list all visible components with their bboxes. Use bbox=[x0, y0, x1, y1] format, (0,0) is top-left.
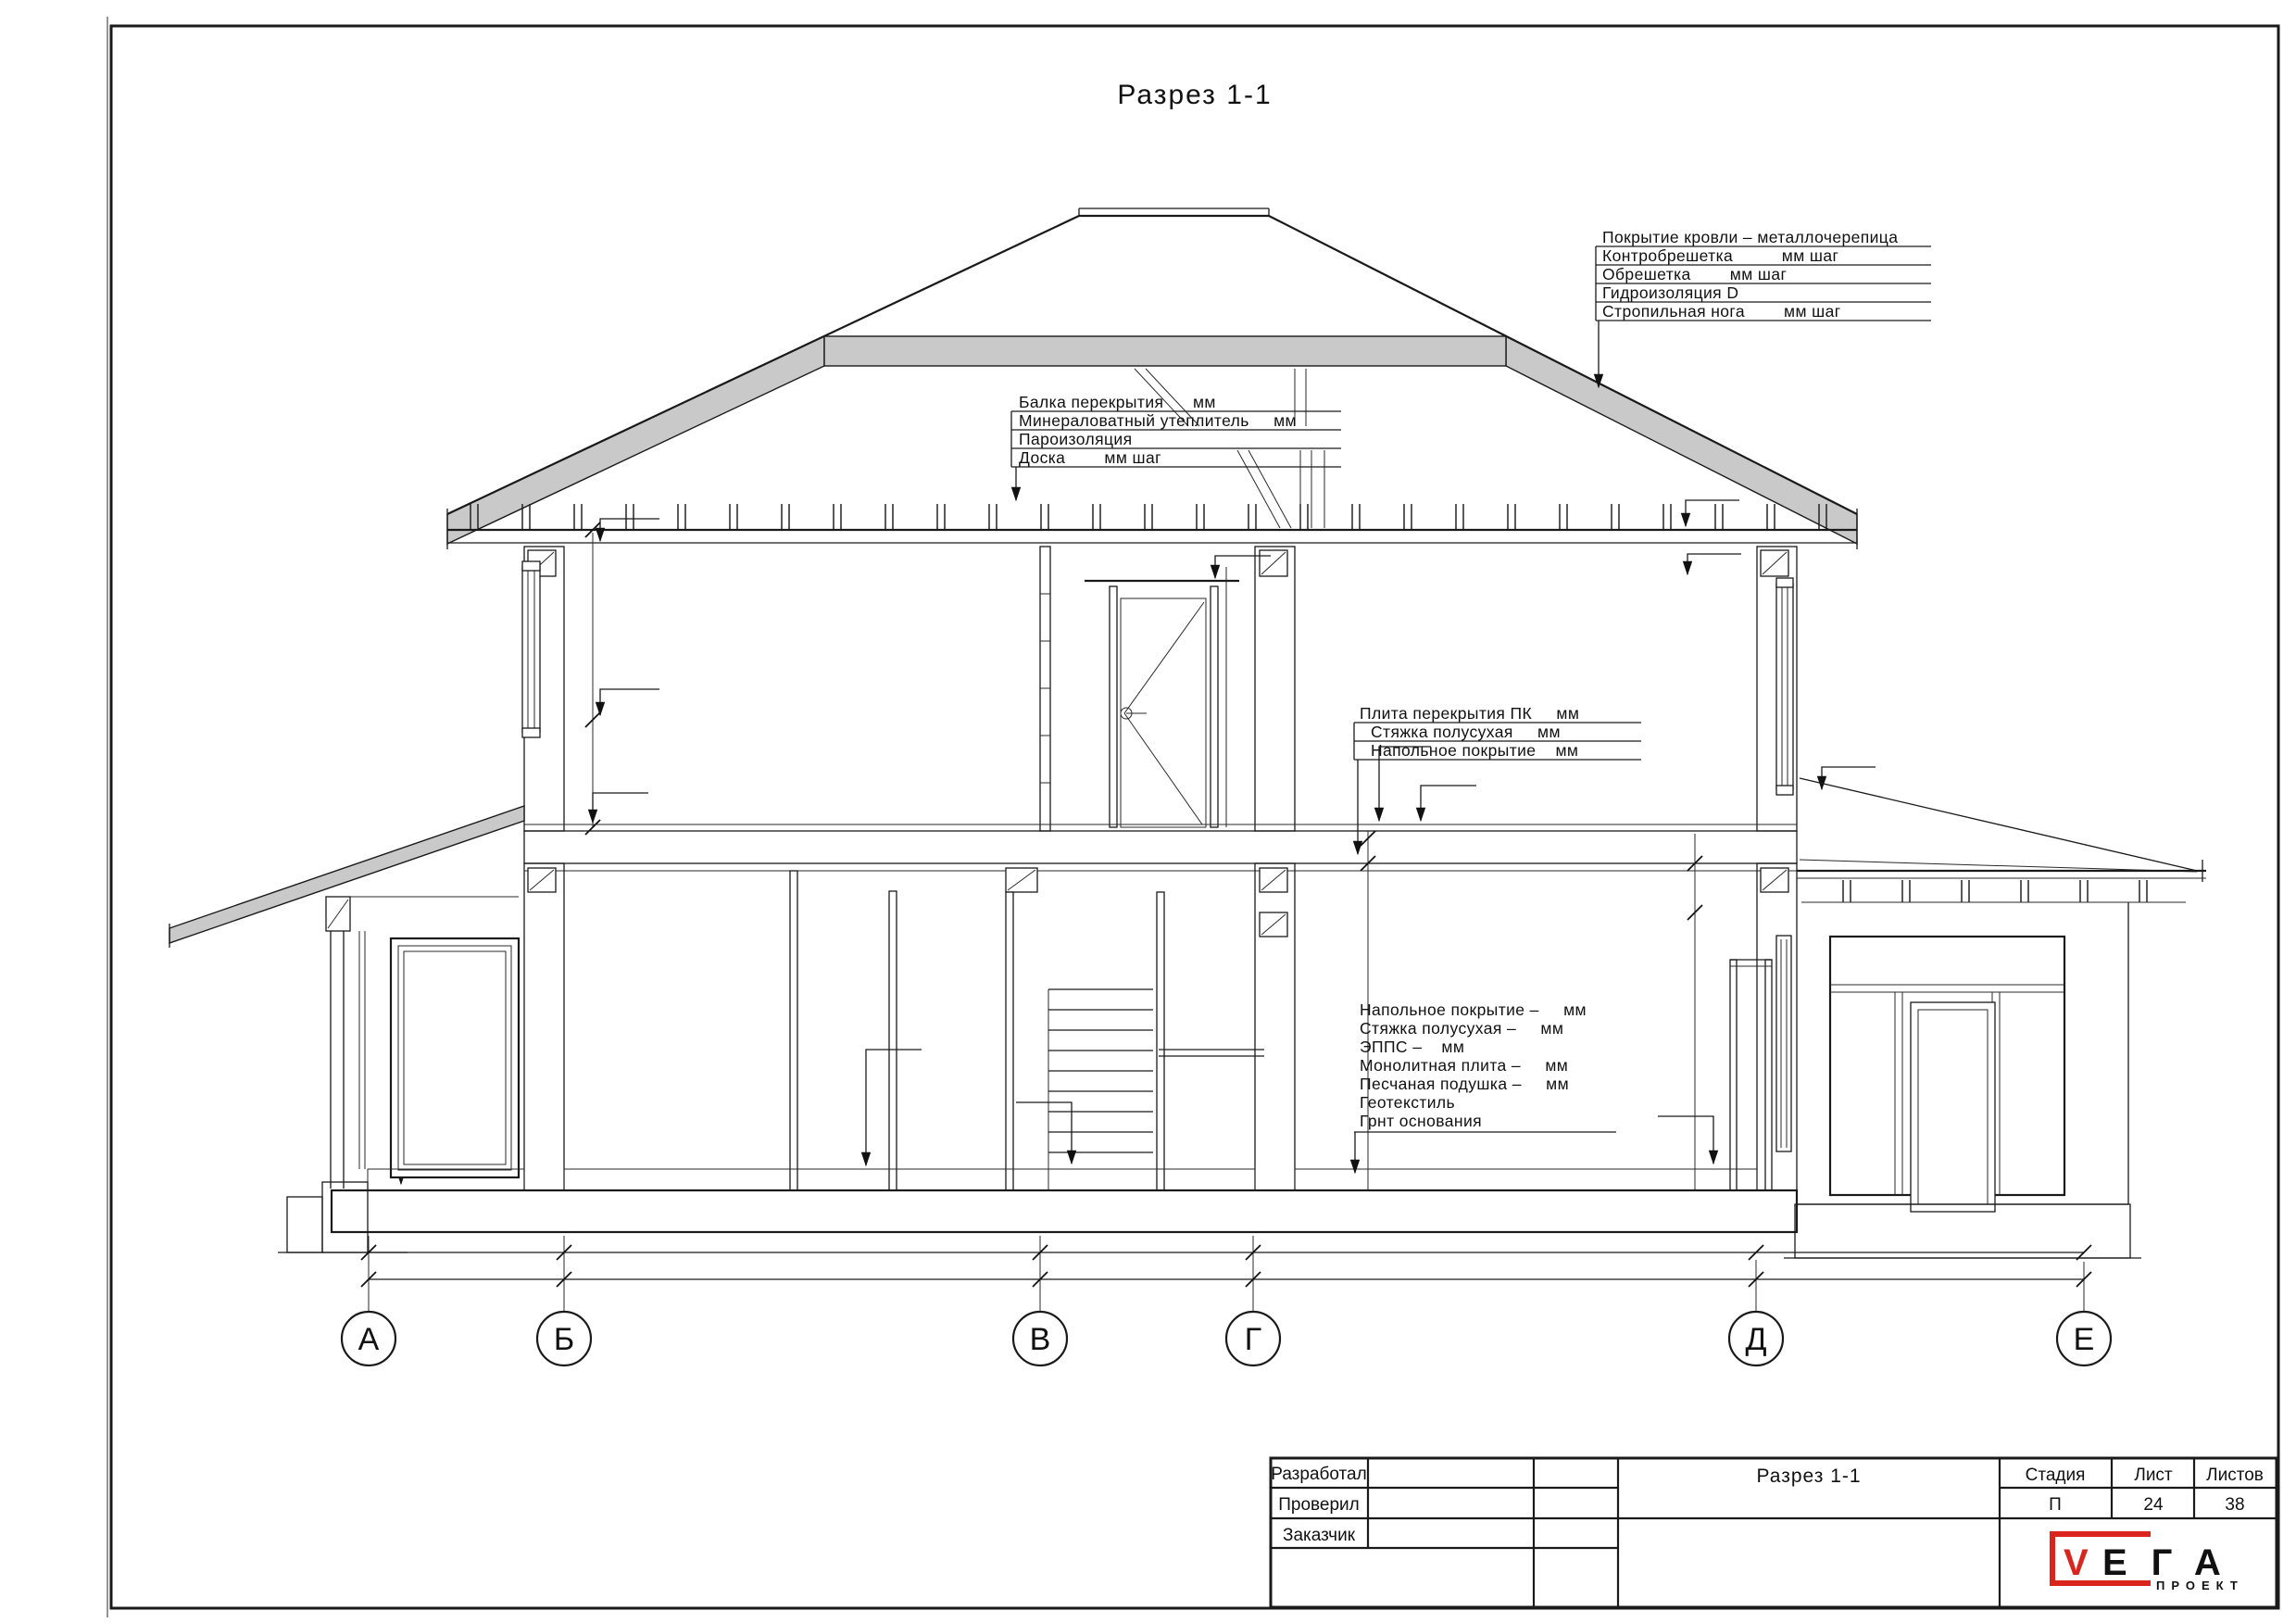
dimension-axes: А Б В Г Д Е bbox=[342, 1236, 2111, 1365]
slab-layer-line: Напольное покрытие мм bbox=[1371, 741, 1578, 760]
floor-layer-line: Грнт основания bbox=[1360, 1112, 1482, 1130]
page-title: Разрез 1-1 bbox=[1117, 80, 1272, 110]
ceiling-layer-line: Минераловатный утеплитель мм bbox=[1019, 411, 1297, 430]
slab-layer-line: Стяжка полусухая мм bbox=[1371, 723, 1561, 741]
porch-pedestal bbox=[278, 1182, 408, 1252]
axis-bubble-a: А bbox=[342, 1312, 395, 1365]
doc-title: Разрез 1-1 bbox=[1756, 1466, 1861, 1487]
sheets-value: 38 bbox=[2225, 1495, 2244, 1515]
axis-label-a: А bbox=[358, 1322, 380, 1357]
axis-bubble-g: Г bbox=[1226, 1312, 1280, 1365]
sheets-label: Листов bbox=[2206, 1466, 2264, 1485]
second-floor-ceiling bbox=[447, 504, 1857, 543]
checked-label: Проверил bbox=[1278, 1495, 1360, 1515]
slab-layer-line: Плита перекрытия ПК мм bbox=[1360, 704, 1579, 723]
logo-project-label: ПРОЕКТ bbox=[2156, 1579, 2244, 1592]
sheet-label: Лист bbox=[2134, 1466, 2173, 1485]
interior-door bbox=[1085, 581, 1239, 827]
first-floor-door bbox=[1730, 960, 1772, 1190]
axis-label-d: Д bbox=[1745, 1322, 1766, 1357]
axis-label-e: Е bbox=[2074, 1322, 2095, 1357]
ceiling-layer-line: Доска мм шаг bbox=[1019, 448, 1161, 467]
vega-logo: V ЕГА ПРОЕКТ bbox=[2050, 1531, 2245, 1592]
interfloor-slab bbox=[524, 824, 1797, 871]
stud-partition bbox=[1040, 547, 1050, 831]
ground-floor-slab bbox=[278, 1169, 1797, 1252]
ceiling-layer-line: Балка перекрытия мм bbox=[1019, 393, 1216, 411]
roof-layer-line: Стропильная нога мм шаг bbox=[1602, 302, 1841, 321]
axis-label-v: В bbox=[1030, 1322, 1051, 1357]
drawing-sheet: Разрез 1-1 bbox=[0, 0, 2296, 1623]
left-porch bbox=[169, 806, 524, 1189]
sheet-value: 24 bbox=[2143, 1495, 2164, 1515]
roof-layer-line: Контробрешетка мм шаг bbox=[1602, 246, 1838, 265]
floor-layer-line: Геотекстиль bbox=[1360, 1093, 1455, 1112]
floor-layer-line: ЭППС – мм bbox=[1360, 1038, 1464, 1056]
floor-layer-line: Монолитная плита – мм bbox=[1360, 1056, 1568, 1075]
developed-label: Разработал bbox=[1271, 1465, 1366, 1484]
beam-section bbox=[528, 550, 1788, 576]
ceiling-layer-line: Пароизоляция bbox=[1019, 430, 1133, 448]
dimension-ticks bbox=[361, 1245, 2091, 1287]
axis-bubble-v: В bbox=[1013, 1312, 1067, 1365]
axis-label-b: Б bbox=[554, 1322, 574, 1357]
callout-roof-layers: Покрытие кровли – металлочерепица Контро… bbox=[1596, 228, 1931, 387]
stage-label: Стадия bbox=[2026, 1466, 2086, 1485]
axis-bubble-b: Б bbox=[537, 1312, 591, 1365]
axis-bubble-d: Д bbox=[1729, 1312, 1783, 1365]
roof-layer-line: Гидроизоляция D bbox=[1602, 283, 1738, 302]
callout-ceiling-layers: Балка перекрытия мм Минераловатный утепл… bbox=[1011, 393, 1341, 500]
porch-glazed-wall bbox=[1830, 937, 2064, 1212]
roof-layer-line: Обрешетка мм шаг bbox=[1602, 265, 1787, 283]
second-floor bbox=[522, 500, 1797, 835]
floor-layer-line: Напольное покрытие – мм bbox=[1360, 1000, 1587, 1019]
floor-layer-line: Стяжка полусухая – мм bbox=[1360, 1019, 1563, 1038]
customer-label: Заказчик bbox=[1283, 1526, 1356, 1545]
title-block: Разработал Проверил Заказчик Разрез 1-1 … bbox=[1271, 1458, 2277, 1607]
wall-window-section bbox=[1776, 936, 1791, 1151]
porch-window bbox=[391, 938, 519, 1177]
callout-slab-layers: Плита перекрытия ПК мм Стяжка полусухая … bbox=[1354, 704, 1641, 854]
floor-layer-line: Песчаная подушка – мм bbox=[1360, 1075, 1569, 1093]
right-porch bbox=[1784, 778, 2206, 1258]
roof-layer-line: Покрытие кровли – металлочерепица bbox=[1602, 228, 1898, 246]
logo-letter-v: V bbox=[2064, 1542, 2089, 1583]
axis-bubble-e: Е bbox=[2057, 1312, 2111, 1365]
callout-floor-layers: Напольное покрытие – мм Стяжка полусухая… bbox=[1354, 1000, 1616, 1173]
logo-letters-ega: ЕГА bbox=[2102, 1542, 2245, 1583]
axis-label-g: Г bbox=[1245, 1322, 1261, 1357]
stage-value: П bbox=[2049, 1495, 2062, 1515]
section-drawing-canvas: Разрез 1-1 bbox=[0, 0, 2296, 1623]
